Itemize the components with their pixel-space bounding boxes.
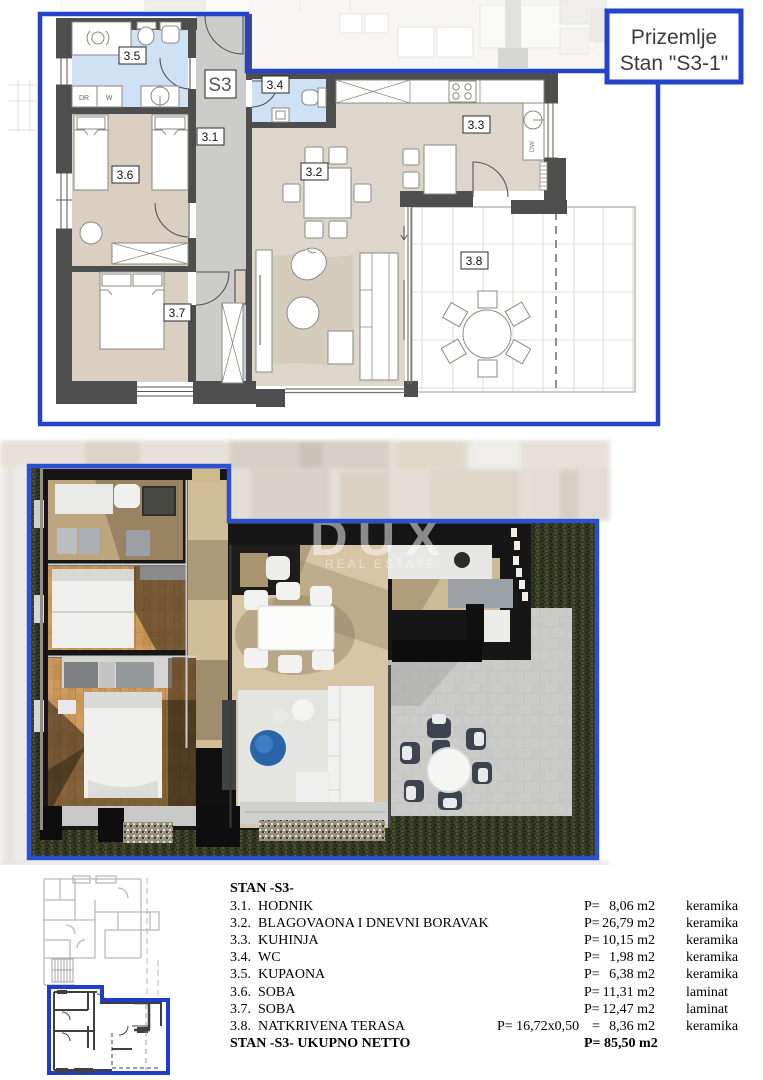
svg-text:Prizemlje: Prizemlje — [631, 26, 717, 49]
svg-text:3.5: 3.5 — [124, 49, 141, 63]
svg-text:3.8: 3.8 — [466, 254, 483, 268]
svg-text:3.1: 3.1 — [202, 130, 219, 144]
svg-text:DR: DR — [79, 95, 89, 102]
svg-text:3.2: 3.2 — [306, 165, 323, 179]
svg-text:3.6: 3.6 — [117, 168, 134, 182]
svg-text:W: W — [106, 95, 113, 102]
svg-text:3.7: 3.7 — [169, 306, 186, 320]
svg-text:REAL ESTATE: REAL ESTATE — [325, 557, 437, 571]
svg-text:3.3: 3.3 — [468, 118, 485, 132]
svg-text:3.4: 3.4 — [267, 78, 284, 92]
svg-text:Stan "S3-1": Stan "S3-1" — [620, 52, 728, 75]
svg-text:DW: DW — [529, 140, 536, 152]
svg-text:S3: S3 — [208, 75, 231, 96]
